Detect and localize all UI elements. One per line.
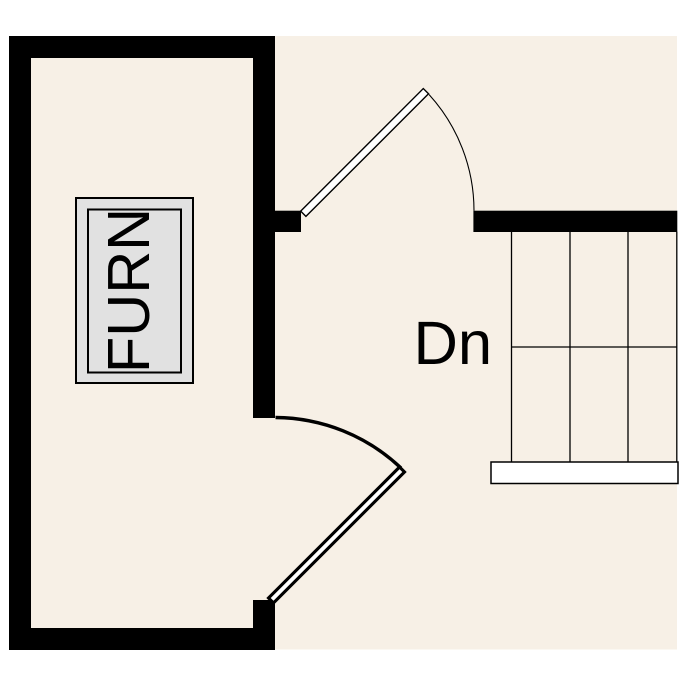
svg-text:FURN: FURN [95, 208, 162, 373]
svg-text:Dn: Dn [414, 309, 493, 378]
